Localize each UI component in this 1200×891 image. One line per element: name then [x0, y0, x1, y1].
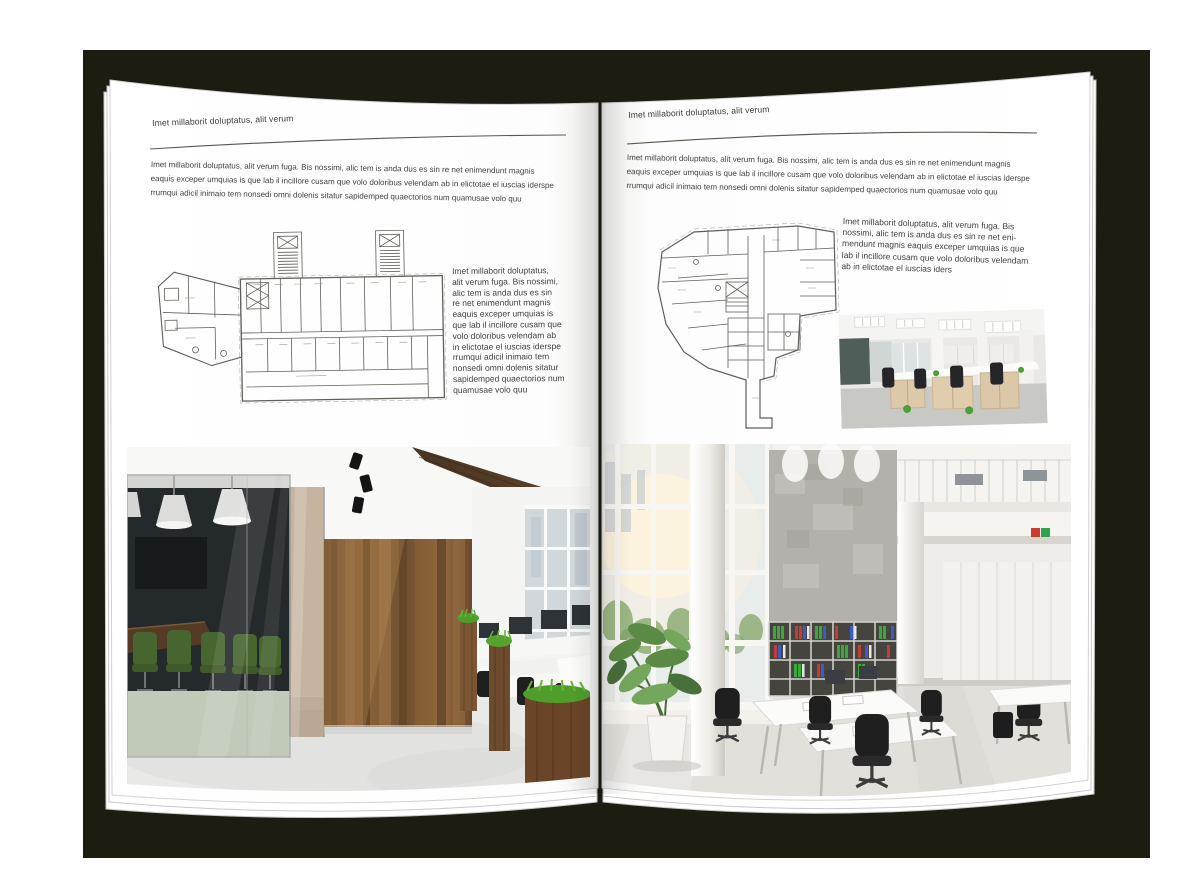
office-workstations-illustration: [838, 309, 1047, 429]
right-side-text: Imet millaborit doluptatus, alit verum f…: [841, 216, 1029, 278]
left-header-rule: [150, 131, 566, 153]
side-line: que lab il incillore cusam que: [452, 319, 564, 331]
left-office-photo: [127, 447, 590, 807]
open-space-office-illustration: [603, 444, 1071, 809]
left-side-text: Imet millaborit doluptatus, alit verum f…: [452, 265, 565, 396]
right-page-intro: Imet millaborit doluptatus, alit verum f…: [626, 151, 1030, 200]
side-line: Imet millaborit doluptatus,: [452, 265, 564, 277]
side-line: volo doloribus velendam ab: [453, 330, 565, 342]
side-line: quamusae volo quu: [453, 384, 565, 396]
small-office-photo: [838, 309, 1047, 429]
side-line: sapidemped quaectorios num: [453, 373, 565, 385]
book-spread-mockup: Imet millaborit doluptatus, alit verum I…: [0, 0, 1200, 891]
side-line: alit verum fuga. Bis nossimi,: [452, 276, 564, 288]
right-floor-plan-drawing: [648, 218, 843, 430]
right-header-rule: [627, 124, 1037, 148]
left-page-intro: Imet millaborit doluptatus, alit verum f…: [150, 158, 554, 207]
loft-office-illustration: [127, 447, 590, 807]
right-office-photo: [603, 444, 1071, 809]
left-floor-plan-drawing: [153, 223, 451, 413]
